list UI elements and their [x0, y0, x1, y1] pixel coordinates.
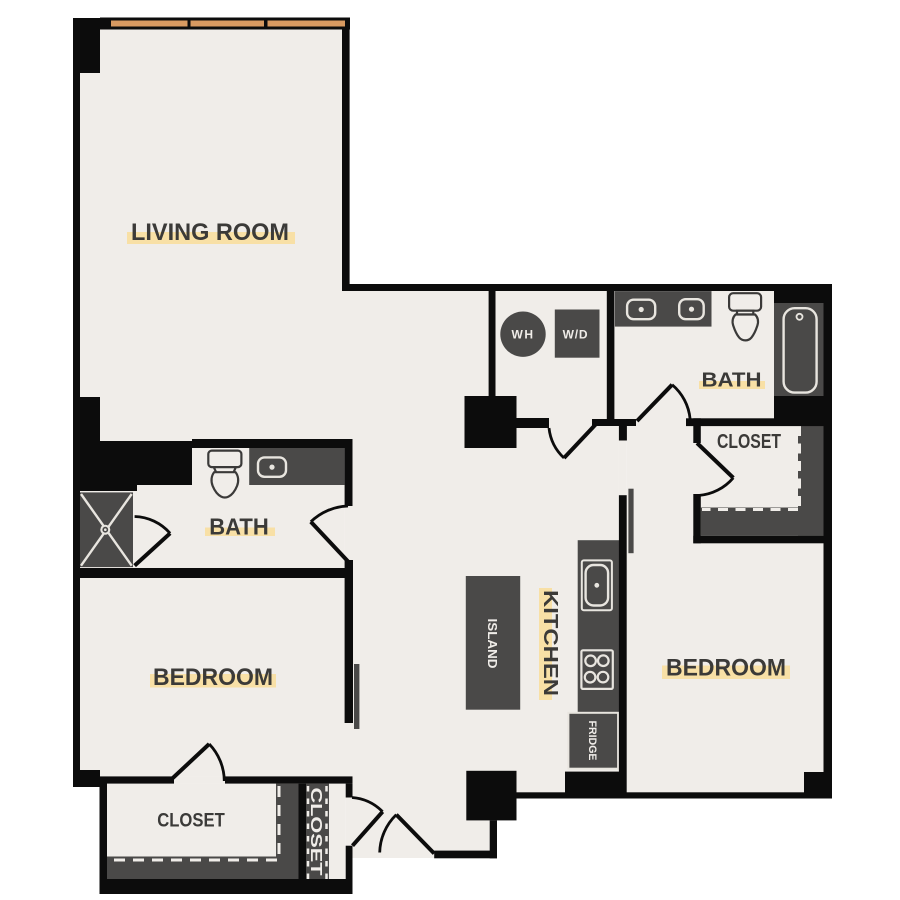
svg-text:KITCHEN: KITCHEN	[539, 590, 561, 696]
svg-text:CLOSET: CLOSET	[307, 788, 324, 876]
svg-text:WH: WH	[512, 328, 535, 342]
svg-text:BATH: BATH	[209, 514, 269, 540]
svg-text:BATH: BATH	[702, 369, 762, 392]
svg-text:BEDROOM: BEDROOM	[153, 664, 273, 691]
svg-text:CLOSET: CLOSET	[157, 811, 225, 832]
svg-text:LIVING ROOM: LIVING ROOM	[131, 219, 289, 246]
svg-text:BEDROOM: BEDROOM	[666, 655, 786, 682]
svg-text:FRIDGE: FRIDGE	[586, 721, 598, 761]
svg-text:W/D: W/D	[563, 328, 589, 342]
svg-text:ISLAND: ISLAND	[485, 619, 500, 669]
svg-text:CLOSET: CLOSET	[717, 431, 781, 453]
